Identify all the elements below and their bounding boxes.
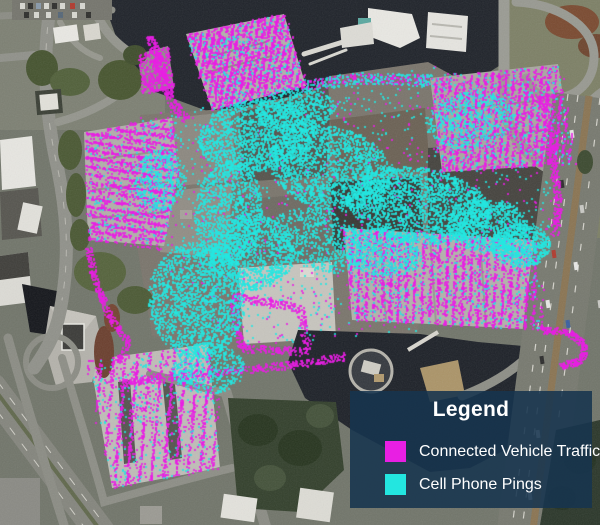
legend-item-cell-phone-pings: Cell Phone Pings xyxy=(385,474,592,495)
legend-panel: Legend Connected Vehicle TrafficCell Pho… xyxy=(350,391,592,508)
connected-vehicle-traffic-swatch xyxy=(385,441,406,462)
legend-items: Connected Vehicle TrafficCell Phone Ping… xyxy=(350,441,592,495)
legend-item-connected-vehicle-traffic: Connected Vehicle Traffic xyxy=(385,441,592,462)
legend-title: Legend xyxy=(350,398,592,422)
legend-item-label: Connected Vehicle Traffic xyxy=(419,441,600,462)
map-viewport[interactable]: Legend Connected Vehicle TrafficCell Pho… xyxy=(0,0,600,525)
cell-phone-pings-swatch xyxy=(385,474,406,495)
legend-item-label: Cell Phone Pings xyxy=(419,474,542,495)
